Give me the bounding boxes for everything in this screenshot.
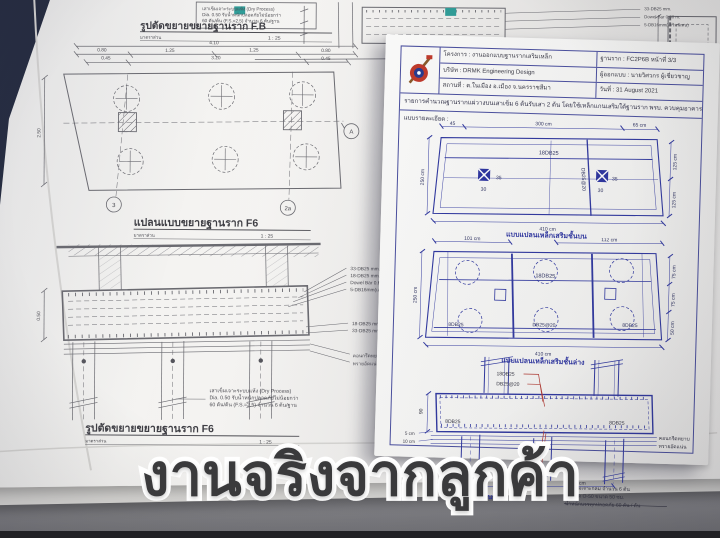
footing-field: ฐานราก : FC2P6B หน้าที่ 3/3 bbox=[597, 52, 703, 70]
dim-label: 75 cm bbox=[671, 265, 677, 279]
dim-label: 250 cm bbox=[412, 287, 418, 304]
grid-label-a: A bbox=[349, 130, 353, 136]
grid-label-3: 3 bbox=[112, 203, 116, 209]
photo-bottom-edge bbox=[0, 531, 720, 538]
dim-label: 250 cm bbox=[420, 169, 426, 186]
dim-label: 112 cm bbox=[601, 237, 617, 243]
scale-value: 1 : 25 bbox=[268, 36, 281, 42]
caption-overlay: งานจริงจากลูกค้า bbox=[0, 444, 720, 508]
note-line: 60 ตัน/ต้น (F.S.=2.5) จำนวน 6 ต้น/ฐาน bbox=[209, 401, 297, 409]
dim-label: 101 cm bbox=[464, 236, 481, 242]
rebar-label: 5-DB16mm(เสริมพิเศษ) bbox=[644, 22, 689, 27]
rebar-label: 8DB25 bbox=[445, 419, 461, 425]
material-label: คอนกรีตหยาบ bbox=[659, 435, 690, 443]
photo-of-blueprints: เสาเข็มเจาะระบบแห้ง (Dry Process) Dia. 0… bbox=[0, 0, 720, 538]
section-footing bbox=[62, 284, 309, 342]
blueprint-sheet-right: โครงการ : งานออกแบบฐานรากเสริมเหล็ก ฐานร… bbox=[374, 34, 720, 465]
dim-label: 75 cm bbox=[670, 293, 676, 307]
dim-label: 2.50 bbox=[36, 128, 42, 138]
note-line: Dia. 0.50 รับน้ำหนักปลอดภัยไม่น้อยกว่า bbox=[202, 11, 281, 18]
diagram-area: แบบรายละเอียด : bbox=[390, 110, 701, 456]
plan-column-squares bbox=[118, 110, 301, 133]
title-block-table: โครงการ : งานออกแบบฐานรากเสริมเหล็ก ฐานร… bbox=[390, 45, 705, 453]
note-line: เสาเข็มเจาะระบบแห้ง (Dry Process) bbox=[202, 4, 275, 12]
grid-bubble-labels: A 3 2a bbox=[112, 128, 353, 213]
dim-label: 90 bbox=[418, 408, 424, 414]
rebar-label: DB25@20 bbox=[580, 168, 587, 192]
plan-title: แปลนแบบขยายฐานราก F6 bbox=[134, 217, 259, 230]
note-line: เสาเข็มเจาะระบบแห้ง (Dry Process) bbox=[210, 386, 292, 395]
diagram-bottom-reinforcement-plan: 101 cm 112 cm 250 cm 75 cm 75 cm 50 cm 4… bbox=[393, 232, 696, 368]
dim-label: 0.50 bbox=[36, 311, 42, 321]
scale-label: มาตราส่วน bbox=[134, 233, 155, 238]
dim-label: 1.25 bbox=[165, 48, 175, 54]
dim-label: 0.45 bbox=[101, 55, 111, 61]
rebar-label: 18DB25 bbox=[539, 150, 559, 157]
logo-graphic bbox=[405, 52, 436, 89]
rebar-label: 18-DB25 mm. bbox=[350, 273, 380, 279]
teal-sticker bbox=[445, 8, 456, 16]
rebar-label: 8DB25 bbox=[622, 323, 638, 329]
scale-label: มาตราส่วน bbox=[140, 35, 161, 40]
dim-label: 0.45 bbox=[321, 56, 331, 62]
designer-field: ผู้ออกแบบ : นายวิศวกร ผู้เชี่ยวชาญ bbox=[597, 68, 703, 86]
d1-labels: 45 300 cm 65 cm 250 cm 125 cm 125 cm 410… bbox=[419, 117, 680, 237]
plan-dimension-lines bbox=[41, 41, 358, 189]
rebar-label: 8DB25 bbox=[448, 322, 464, 328]
dim-label: 65 cm bbox=[633, 122, 647, 128]
section-base-layers bbox=[64, 338, 310, 356]
dim-label: 35 bbox=[612, 176, 618, 182]
rebar-label: DB25@20 bbox=[532, 322, 556, 329]
rebar-label: 8DB25 bbox=[609, 420, 625, 426]
section-piles bbox=[69, 339, 275, 421]
dim-label: 0.80 bbox=[97, 47, 107, 53]
rebar-label: Dowel Bar 0.60 m. bbox=[644, 14, 680, 19]
dim-label: 30 bbox=[598, 188, 604, 194]
dim-label: 0.80 bbox=[321, 48, 331, 54]
dim-label: 125 cm bbox=[671, 192, 677, 209]
dim-label: 300 cm bbox=[535, 121, 552, 127]
grid-label-2a: 2a bbox=[284, 206, 291, 212]
rebar-label: 33-DB25 mm. bbox=[350, 266, 380, 272]
dim-label: 35 bbox=[496, 175, 502, 181]
dim-label: 3.20 bbox=[211, 55, 221, 61]
dim-label: 4.10 bbox=[209, 40, 219, 46]
dim-label: 50 cm bbox=[670, 321, 676, 335]
grid-bubbles bbox=[106, 121, 359, 215]
rebar-label: DB25@20 bbox=[496, 381, 520, 388]
rebar-label: 33-DB25 mm. bbox=[644, 6, 671, 11]
scale-label: มาตราส่วน bbox=[85, 438, 106, 443]
pile-note-block: เสาเข็มเจาะระบบแห้ง (Dry Process) Dia. 0… bbox=[209, 386, 298, 409]
dim-label: 30 bbox=[481, 187, 487, 193]
scale-value: 1 : 25 bbox=[261, 234, 274, 240]
rebar-label: 18DB25 bbox=[535, 273, 555, 280]
rebar-label: 18DB25 bbox=[496, 371, 514, 378]
dim-label: 5 cm bbox=[405, 431, 415, 436]
foundation-plan-outline bbox=[63, 70, 342, 192]
company-logo bbox=[400, 46, 440, 93]
grid-lines bbox=[63, 70, 344, 200]
dim-label: 1.25 bbox=[249, 47, 259, 53]
dim-label: 45 bbox=[450, 121, 456, 127]
column-marker bbox=[596, 170, 608, 182]
title-block-header: โครงการ : งานออกแบบฐานรากเสริมเหล็ก ฐานร… bbox=[400, 46, 703, 101]
column-marker bbox=[478, 169, 490, 181]
dim-label: 125 cm bbox=[672, 154, 678, 171]
left-sheet-title-bottom: รูปตัดขยายขยายฐานราก F6 bbox=[85, 422, 214, 436]
date-field: วันที่ : 31 August 2021 bbox=[596, 83, 702, 101]
diagram-top-reinforcement-plan: 45 300 cm 65 cm 250 cm 125 cm 125 cm 410… bbox=[396, 116, 699, 242]
